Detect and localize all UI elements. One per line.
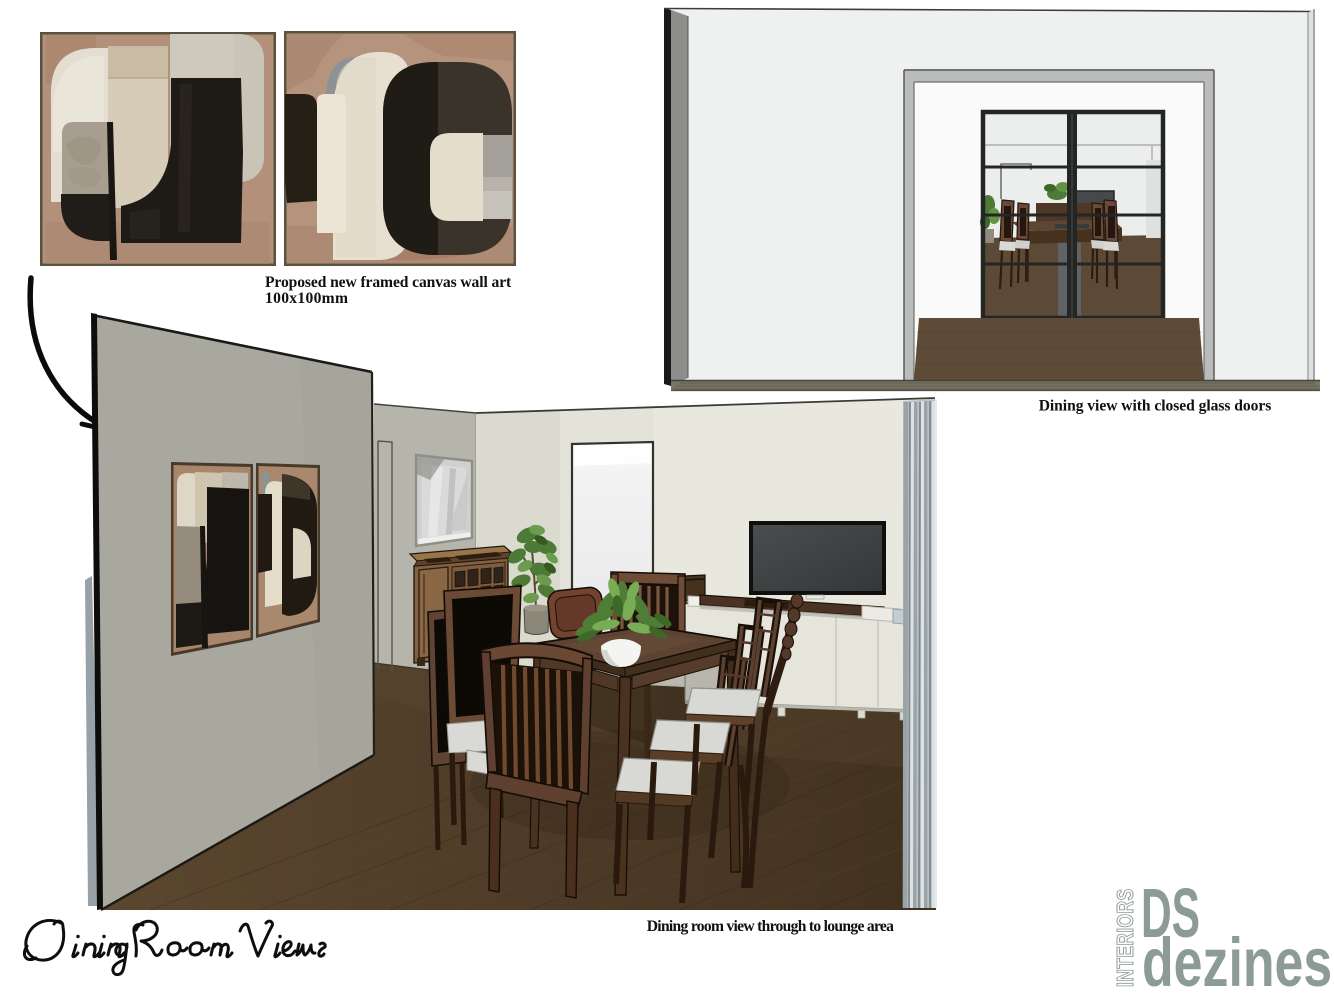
svg-text:100x100mm: 100x100mm bbox=[265, 290, 348, 307]
svg-text:dezines: dezines bbox=[1142, 924, 1332, 1000]
svg-text:Dining room view through to lo: Dining room view through to lounge area bbox=[647, 918, 894, 935]
svg-text:INTERIORS: INTERIORS bbox=[1114, 888, 1139, 987]
svg-text:Proposed new framed canvas wal: Proposed new framed canvas wall art bbox=[265, 274, 512, 291]
svg-text:Dining view with closed glass: Dining view with closed glass doors bbox=[1039, 398, 1272, 415]
